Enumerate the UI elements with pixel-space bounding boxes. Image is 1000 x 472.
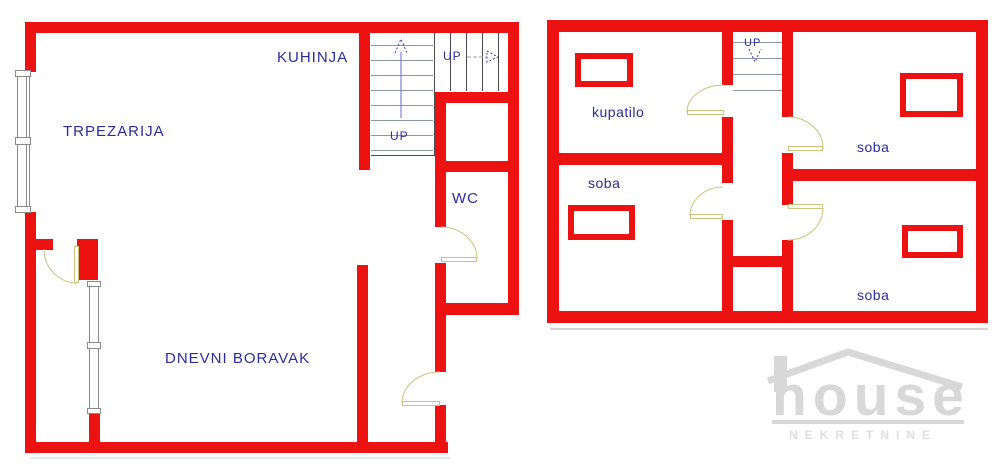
room-label-room-bottom-right: soba bbox=[857, 288, 889, 303]
fixture-rect-room-bottom-right bbox=[902, 225, 963, 258]
wall-segment bbox=[722, 117, 733, 183]
door-arc bbox=[44, 249, 77, 283]
wall-segment bbox=[782, 32, 793, 117]
wall-segment bbox=[547, 20, 559, 323]
wall-segment bbox=[89, 413, 100, 453]
wall-segment bbox=[25, 22, 519, 33]
watermark-brand: house bbox=[772, 368, 970, 425]
wall-segment bbox=[722, 32, 733, 85]
stair-tread bbox=[733, 90, 782, 91]
up-arrow-icon bbox=[395, 39, 407, 53]
watermark-tagline: NEKRETNINE bbox=[789, 428, 937, 442]
wall-segment bbox=[357, 265, 368, 453]
watermark-underline bbox=[772, 420, 964, 424]
door-leaf bbox=[74, 246, 79, 283]
wall-segment bbox=[25, 22, 36, 72]
up-label: UP bbox=[390, 130, 409, 143]
plan-shadow-line bbox=[30, 457, 450, 459]
door-leaf bbox=[690, 214, 723, 219]
wall-segment bbox=[25, 212, 36, 453]
right-arrow-icon bbox=[487, 51, 498, 62]
fixture-rect-bathroom bbox=[575, 53, 633, 87]
room-label-dining: TRPEZARIJA bbox=[63, 124, 165, 141]
wall-segment bbox=[435, 92, 446, 227]
door-arc bbox=[690, 187, 723, 216]
stair-tread bbox=[482, 33, 483, 91]
wall-segment bbox=[435, 161, 519, 172]
window-mullion bbox=[15, 206, 31, 213]
door-leaf bbox=[441, 257, 477, 262]
door-leaf bbox=[788, 204, 823, 209]
fixture-rect-room-left bbox=[568, 205, 635, 240]
wall-segment bbox=[782, 240, 793, 311]
stair-tread bbox=[371, 60, 433, 61]
window-mullion bbox=[87, 342, 101, 349]
door-leaf bbox=[687, 110, 724, 115]
stair-edge-line bbox=[434, 33, 435, 156]
wall-segment bbox=[547, 153, 733, 165]
stair-tread bbox=[733, 74, 782, 75]
down-arrow-icon bbox=[749, 49, 761, 62]
room-label-living: DNEVNI BORAVAK bbox=[165, 351, 310, 368]
up-label: UP bbox=[744, 37, 761, 49]
stair-tread bbox=[498, 33, 499, 91]
up-label: UP bbox=[443, 50, 462, 63]
wall-segment bbox=[435, 303, 519, 315]
window-mullion bbox=[87, 281, 101, 287]
plan-shadow-line bbox=[550, 328, 988, 330]
room-label-kitchen: KUHINJA bbox=[277, 50, 348, 67]
room-label-room-left: soba bbox=[588, 176, 620, 191]
window-mullion bbox=[15, 137, 31, 145]
wall-segment bbox=[722, 256, 793, 267]
stair-edge-line bbox=[371, 155, 435, 156]
stair-tread bbox=[371, 45, 433, 46]
door-leaf bbox=[402, 401, 440, 406]
stair-tread bbox=[371, 90, 433, 91]
door-leaf bbox=[788, 146, 823, 151]
floor-plan-canvas: house NEKRETNINE bbox=[0, 0, 1000, 472]
stair-tread bbox=[371, 150, 433, 151]
wall-segment bbox=[359, 22, 370, 170]
door-arc bbox=[687, 85, 724, 112]
stair-tread bbox=[733, 58, 782, 59]
wall-segment bbox=[435, 92, 519, 103]
stair-tread bbox=[371, 75, 433, 76]
room-label-wc: WC bbox=[452, 191, 479, 208]
wall-segment bbox=[77, 239, 98, 280]
fixture-rect-room-top-right bbox=[900, 73, 963, 117]
door-arc bbox=[402, 372, 440, 403]
stair-tread bbox=[466, 33, 467, 91]
room-label-room-top-right: soba bbox=[857, 140, 889, 155]
wall-segment bbox=[36, 239, 53, 250]
wall-segment bbox=[547, 311, 988, 323]
window-mullion bbox=[15, 70, 31, 77]
wall-segment bbox=[435, 405, 446, 453]
door-arc bbox=[788, 117, 823, 148]
wall-segment bbox=[435, 263, 446, 372]
wall-segment bbox=[782, 169, 988, 181]
door-arc bbox=[788, 208, 823, 240]
room-label-bathroom: kupatilo bbox=[592, 105, 644, 120]
wall-segment bbox=[547, 20, 988, 32]
stair-tread bbox=[371, 105, 433, 106]
window-mullion bbox=[87, 408, 101, 414]
door-arc bbox=[441, 227, 477, 259]
stair-tread bbox=[371, 120, 433, 121]
